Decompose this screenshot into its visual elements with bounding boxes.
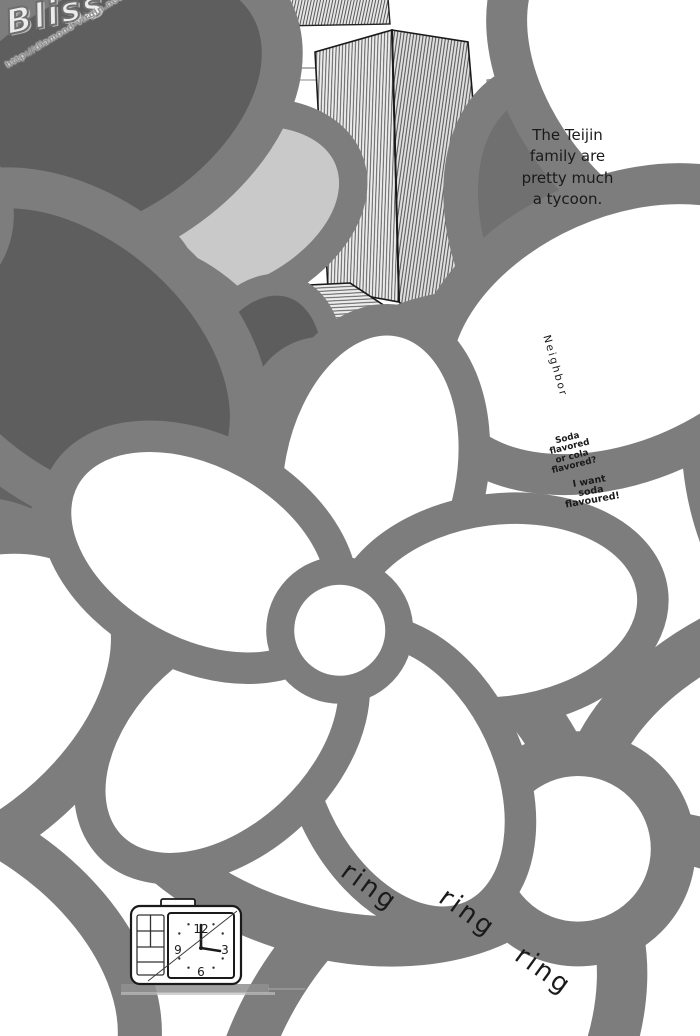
manga-page: 12 3 6 9 Bliss http://diamond-virgin.net… [0, 0, 700, 1036]
neighbor-sign-text: Neighbor [540, 334, 569, 399]
caption-text: The Teijin family are pretty much a tyco… [513, 97, 622, 238]
numeral-3: 3 [221, 943, 229, 957]
numeral-6: 6 [197, 965, 205, 979]
clock-shadow [121, 984, 269, 993]
neighbor-sign-label: Neighbor [536, 321, 574, 411]
